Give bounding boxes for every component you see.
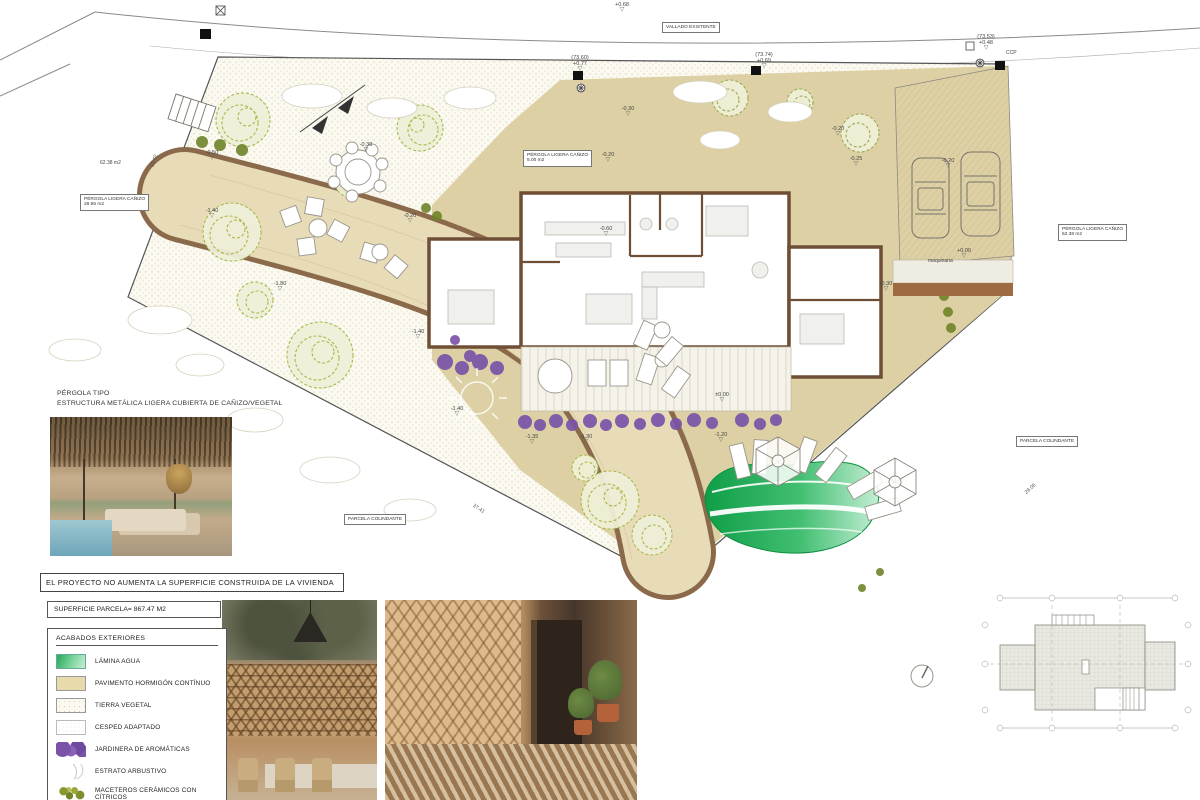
level-marker-triangle: ▽ [755,64,772,69]
legend-items: LÁMINA AGUAPAVIMENTO HORMIGÓN CONTÍNUOTI… [56,653,218,800]
level-marker: -0.20▽ [404,213,417,224]
patio-photo [222,600,377,800]
legend-item-label: ESTRATO ARBUSTIVO [95,768,166,775]
pergola-ligera-62-label: PÉRGOLA LIGERA CAÑIZO 62.38 m2 [1058,224,1127,241]
legend-item: PAVIMENTO HORMIGÓN CONTÍNUO [56,675,218,692]
garage-area [893,66,1014,296]
level-marker: +0.68▽ [615,2,629,13]
chair [238,758,258,792]
ceramic-pot [574,720,592,735]
outdoor-sofa [105,509,187,531]
level-marker-triangle: ▽ [206,214,219,219]
cesped-swatch [56,720,86,735]
level-marker: -0.20▽ [942,158,955,169]
legend-item: JARDINERA DE AROMÁTICAS [56,741,218,758]
level-marker-triangle: ▽ [451,412,464,417]
level-marker-triangle: ▽ [880,287,893,292]
level-marker-triangle: ▽ [942,164,955,169]
level-marker: -1.40▽ [206,208,219,219]
agua-swatch [56,654,86,669]
maceteros-swatch [56,786,86,800]
level-marker: -0.50▽ [206,150,219,161]
roof-plan [982,595,1191,731]
level-marker: +0.00▽ [957,248,971,259]
level-marker-triangle: ▽ [615,8,629,13]
level-marker-triangle: ▽ [977,46,994,51]
level-marker-triangle: ▽ [832,132,845,137]
maquinaria-label: maquinaria [928,258,953,264]
level-marker-triangle: ▽ [580,440,593,445]
legend-item: CESPED ADAPTADO [56,719,218,736]
photo-pool-corner [50,520,112,556]
legend-item-label: LÁMINA AGUA [95,658,140,665]
level-marker: -0.30▽ [880,281,893,292]
potted-plant [588,660,622,700]
area-62-label: 62.38 m2 [100,160,121,166]
exterior-finishes-legend: ACABADOS EXTERIORES LÁMINA AGUAPAVIMENTO… [47,628,227,800]
level-marker: (73.74) +0.69▽ [755,52,772,69]
level-marker-triangle: ▽ [600,232,613,237]
legend-item: LÁMINA AGUA [56,653,218,670]
level-marker: -0.60▽ [600,226,613,237]
legend-item-label: TIERRA VEGETAL [95,702,152,709]
hanging-lamp [166,464,192,494]
level-marker: -0.30▽ [622,106,635,117]
parcel-area-label: SUPERFICIE PARCELA= 867.47 M2 [47,601,221,618]
ceramic-pot [597,704,619,722]
level-marker: -1.35▽ [526,434,539,445]
chair [275,758,295,792]
level-marker-triangle: ▽ [571,67,588,72]
pergola-ligera-28-label: PÉRGOLA LIGERA CAÑIZO 28.96 m2 [80,194,149,211]
pergola-roof-slats [50,417,232,467]
legend-item-label: CESPED ADAPTADO [95,724,160,731]
level-marker-triangle: ▽ [850,162,863,167]
level-marker-triangle: ▽ [206,156,219,161]
legend-title: ACABADOS EXTERIORES [56,635,218,646]
level-marker-triangle: ▽ [404,219,417,224]
level-marker: -1.80▽ [274,281,287,292]
lattice-wall [385,600,521,748]
level-marker-triangle: ▽ [957,254,971,259]
pergola-ligera-5-label: PÉRGOLA LIGERA CAÑIZO 5.00 m2 [523,150,592,167]
pergola-note-subtitle: ESTRUCTURA METÁLICA LIGERA CUBIERTA DE C… [57,400,283,407]
jardinera-swatch [56,742,86,757]
vallado-existente-label: VALLADO EXISTENTE [662,22,720,33]
level-marker-triangle: ▽ [622,112,635,117]
level-marker: -0.30▽ [360,142,373,153]
level-marker-triangle: ▽ [274,287,287,292]
level-marker-triangle: ▽ [602,158,615,163]
dappled-floor [385,744,637,800]
legend-item: TIERRA VEGETAL [56,697,218,714]
level-marker: -1.40▽ [412,329,425,340]
level-marker: -1.30▽ [580,434,593,445]
tierra-swatch [56,698,86,713]
legend-item-label: PAVIMENTO HORMIGÓN CONTÍNUO [95,680,210,687]
pergola-note-title: PÉRGOLA TIPO [57,390,110,397]
corridor-photo [385,600,637,800]
level-marker: (73.53) +0.48▽ [977,34,994,51]
legend-item-label: JARDINERA DE AROMÁTICAS [95,746,190,753]
level-marker: -0.25▽ [850,156,863,167]
ccp-label: CCP [1006,50,1017,56]
level-marker: -0.20▽ [602,152,615,163]
level-marker-triangle: ▽ [412,335,425,340]
level-marker: -1.20▽ [715,432,728,443]
north-compass [911,665,933,687]
lamp-cord [310,600,311,614]
level-marker: -0.20▽ [832,126,845,137]
level-marker-triangle: ▽ [715,398,729,403]
level-marker: -1.40▽ [451,406,464,417]
pavimento-swatch [56,676,86,691]
chair [312,758,332,792]
pergola-photo [50,417,232,556]
parcela-colindante-bottom-label: PARCELA COLINDANTE [344,514,406,525]
parcela-colindante-right-label: PARCELA COLINDANTE [1016,436,1078,447]
legend-item: ESTRATO ARBUSTIVO [56,763,218,780]
tree-foliage [222,600,377,660]
project-statement: EL PROYECTO NO AUMENTA LA SUPERFICIE CON… [40,573,344,592]
legend-item-label: MACETEROS CERÁMICOS CON CÍTRICOS [95,787,218,800]
level-marker: ±0.00▽ [715,392,729,403]
level-marker-triangle: ▽ [360,148,373,153]
lattice-wall [222,664,377,736]
level-marker-triangle: ▽ [526,440,539,445]
potted-plant [568,688,594,718]
level-marker: (73.60) +0.77▽ [571,55,588,72]
level-marker-triangle: ▽ [715,438,728,443]
arbustivo-swatch [56,764,86,779]
site-plan-sheet: +0.68▽(73.60) +0.77▽(73.74) +0.69▽(73.53… [0,0,1200,800]
legend-item: MACETEROS CERÁMICOS CON CÍTRICOS [56,785,218,800]
